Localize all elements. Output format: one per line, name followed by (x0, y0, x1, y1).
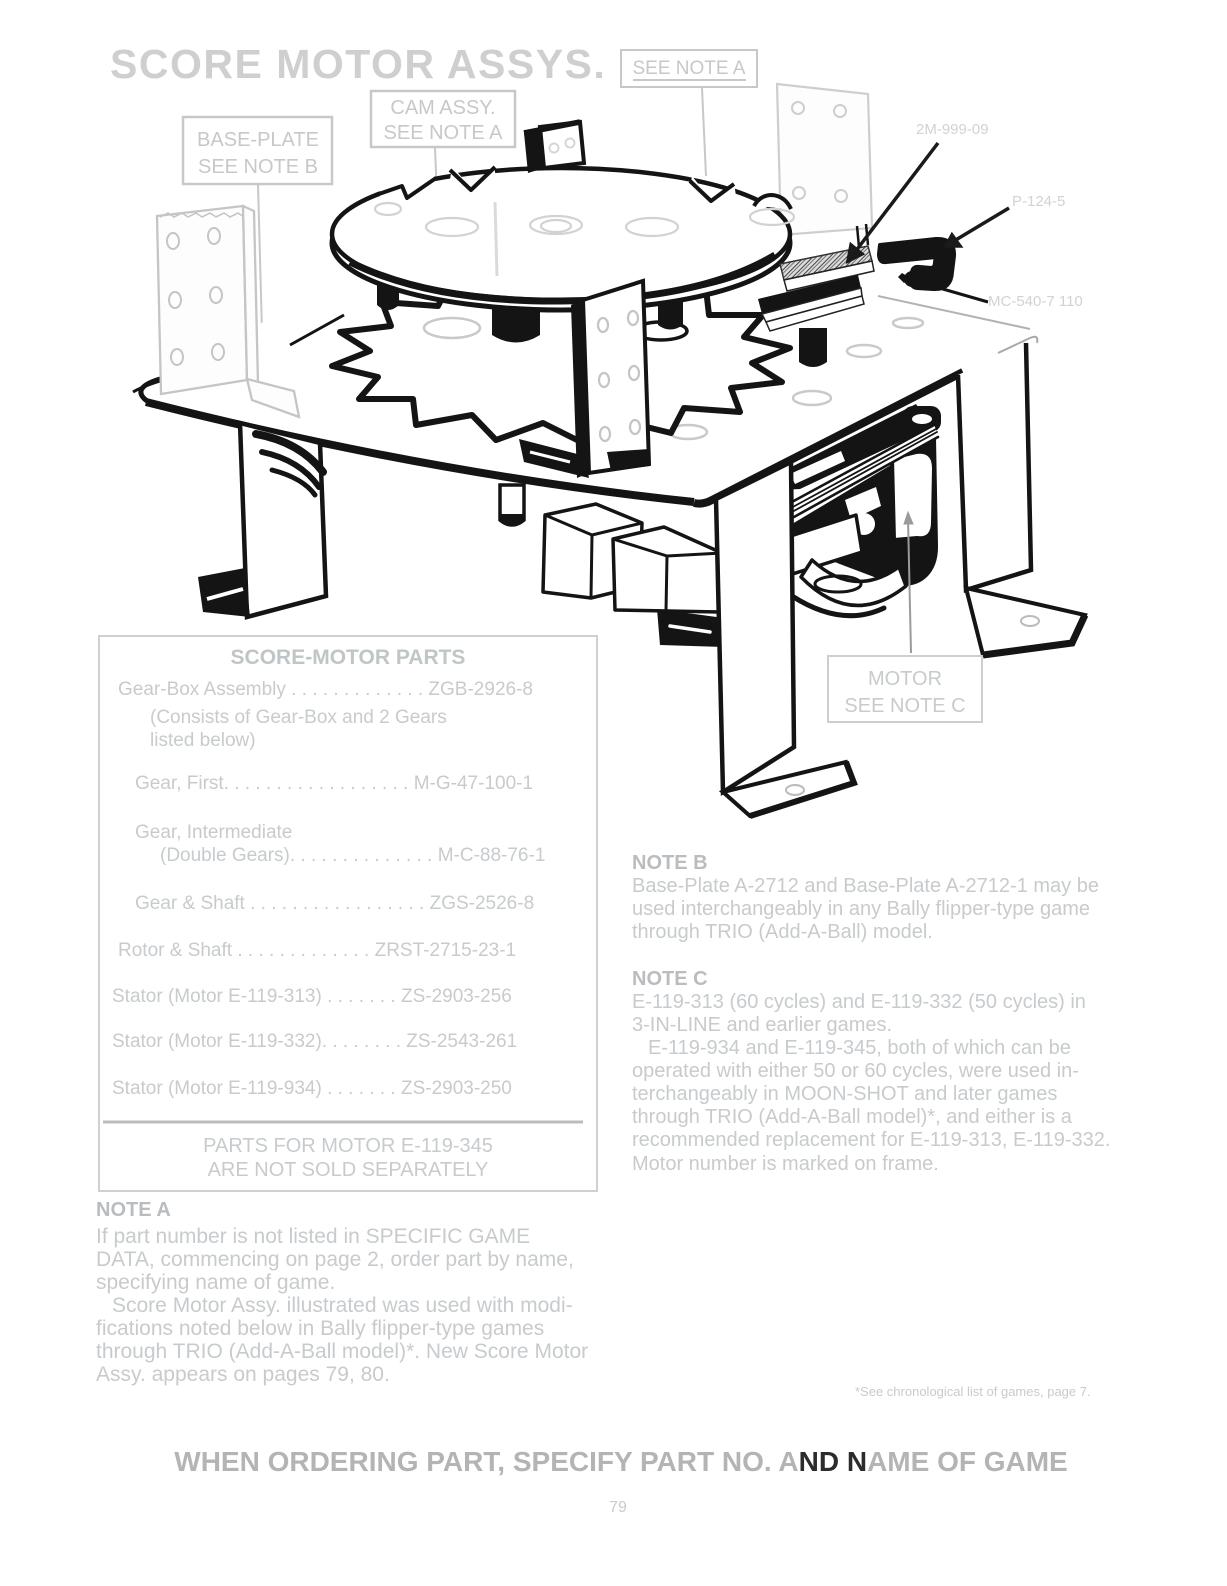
svg-text:Stator (Motor E-119-313) . . .: Stator (Motor E-119-313) . . . . . . . Z… (112, 986, 512, 1007)
svg-text:Gear & Shaft . . . . . . . . .: Gear & Shaft . . . . . . . . . . . . . .… (135, 893, 534, 914)
svg-text:SCORE-MOTOR PARTS: SCORE-MOTOR PARTS (231, 646, 466, 669)
svg-text:through TRIO (Add-A-Ball mo: through TRIO (Add-A-Ball model)*, and ei… (632, 1106, 1073, 1128)
svg-text:Gear, Intermediate: Gear, Intermediate (135, 822, 292, 843)
svg-text:terchangeably in MOON-SHOT: terchangeably in MOON-SHOT and later gam… (632, 1083, 1057, 1105)
svg-text:E-119-934 and E-119-345, bo: E-119-934 and E-119-345, both of which c… (648, 1037, 1071, 1059)
svg-text:WHEN ORDERING PART, SPECIFY PA: WHEN ORDERING PART, SPECIFY PART NO. AND… (174, 1446, 1067, 1477)
svg-text:used interchangeably in any: used interchangeably in any Bally flippe… (632, 898, 1090, 920)
svg-text:Rotor & Shaft . . . . . . . .: Rotor & Shaft . . . . . . . . . . . . . … (118, 940, 516, 961)
svg-text:2M-999-09: 2M-999-09 (916, 121, 989, 138)
svg-text:P-124-5: P-124-5 (1012, 193, 1065, 210)
svg-text:fications noted below in B: fications noted below in Bally flipper-t… (96, 1317, 544, 1340)
svg-text:Gear-Box Assembly . . . . . .: Gear-Box Assembly . . . . . . . . . . . … (118, 679, 533, 700)
svg-text:SCORE MOTOR ASSYS.: SCORE MOTOR ASSYS. (110, 41, 606, 87)
svg-text:recommended replacement for E-: recommended replacement for E-119-313, E… (632, 1129, 1110, 1151)
svg-text:If part number is not lis: If part number is not listed in SPECIFIC… (96, 1225, 530, 1248)
svg-text:SEE NOTE B: SEE NOTE B (198, 156, 318, 178)
svg-text:Motor number is marked on fram: Motor number is marked on frame. (632, 1153, 939, 1175)
svg-text:MOTOR: MOTOR (868, 668, 942, 690)
svg-text:through TRIO (Add-A-Ball model: through TRIO (Add-A-Ball model)*. New Sc… (96, 1340, 588, 1363)
svg-text:79: 79 (609, 1499, 627, 1516)
svg-text:NOTE C: NOTE C (632, 968, 708, 990)
svg-text:specifying name of game.: specifying name of game. (96, 1271, 335, 1294)
svg-text:3-IN-LINE and earlier games.: 3-IN-LINE and earlier games. (632, 1014, 892, 1036)
svg-text:(Consists of Gear-Box and 2 Ge: (Consists of Gear-Box and 2 Gears (150, 707, 447, 728)
svg-text:Stator (Motor E-119-934) . . .: Stator (Motor E-119-934) . . . . . . . Z… (112, 1078, 512, 1099)
svg-text:NOTE B: NOTE B (632, 852, 708, 874)
svg-text:*See chronological list of gam: *See chronological list of games, page 7… (855, 1384, 1091, 1399)
svg-text:Base-Plate A-2712 and Base-Pl: Base-Plate A-2712 and Base-Plate A-2712-… (632, 875, 1099, 897)
svg-text:SEE NOTE A: SEE NOTE A (633, 58, 746, 79)
svg-text:Gear, First. . . . . . . . . .: Gear, First. . . . . . . . . . . . . . .… (135, 773, 533, 794)
svg-text:SEE NOTE A: SEE NOTE A (384, 122, 504, 144)
svg-text:operated with either 50 or: operated with either 50 or 60 cycles, we… (632, 1060, 1079, 1082)
svg-text:Assy. appears on pages 79, 80.: Assy. appears on pages 79, 80. (96, 1363, 390, 1386)
svg-text:DATA, commencing on page 2: DATA, commencing on page 2, order part b… (96, 1248, 574, 1271)
svg-text:Stator (Motor E-119-332). . .: Stator (Motor E-119-332). . . . . . . . … (112, 1031, 517, 1052)
svg-text:BASE-PLATE: BASE-PLATE (197, 129, 319, 151)
svg-text:ARE NOT SOLD SEPARATELY: ARE NOT SOLD SEPARATELY (208, 1159, 489, 1181)
svg-text:E-119-313 (60 cycles) and: E-119-313 (60 cycles) and E-119-332 (50 … (632, 991, 1086, 1013)
svg-text:Score Motor Assy. illustrated: Score Motor Assy. illustrated was used w… (112, 1294, 573, 1317)
svg-text:(Double Gears). . . . . . . .: (Double Gears). . . . . . . . . . . . . … (160, 845, 545, 866)
svg-text:NOTE A: NOTE A (96, 1199, 171, 1221)
svg-text:listed below): listed below) (150, 730, 256, 751)
svg-text:through TRIO (Add-A-Ball) mode: through TRIO (Add-A-Ball) model. (632, 921, 933, 943)
svg-text:PARTS FOR MOTOR E-119-345: PARTS FOR MOTOR E-119-345 (203, 1135, 493, 1157)
svg-text:MC-540-7 110: MC-540-7 110 (988, 293, 1083, 310)
svg-text:SEE NOTE C: SEE NOTE C (844, 695, 965, 717)
svg-text:CAM ASSY.: CAM ASSY. (390, 97, 495, 119)
